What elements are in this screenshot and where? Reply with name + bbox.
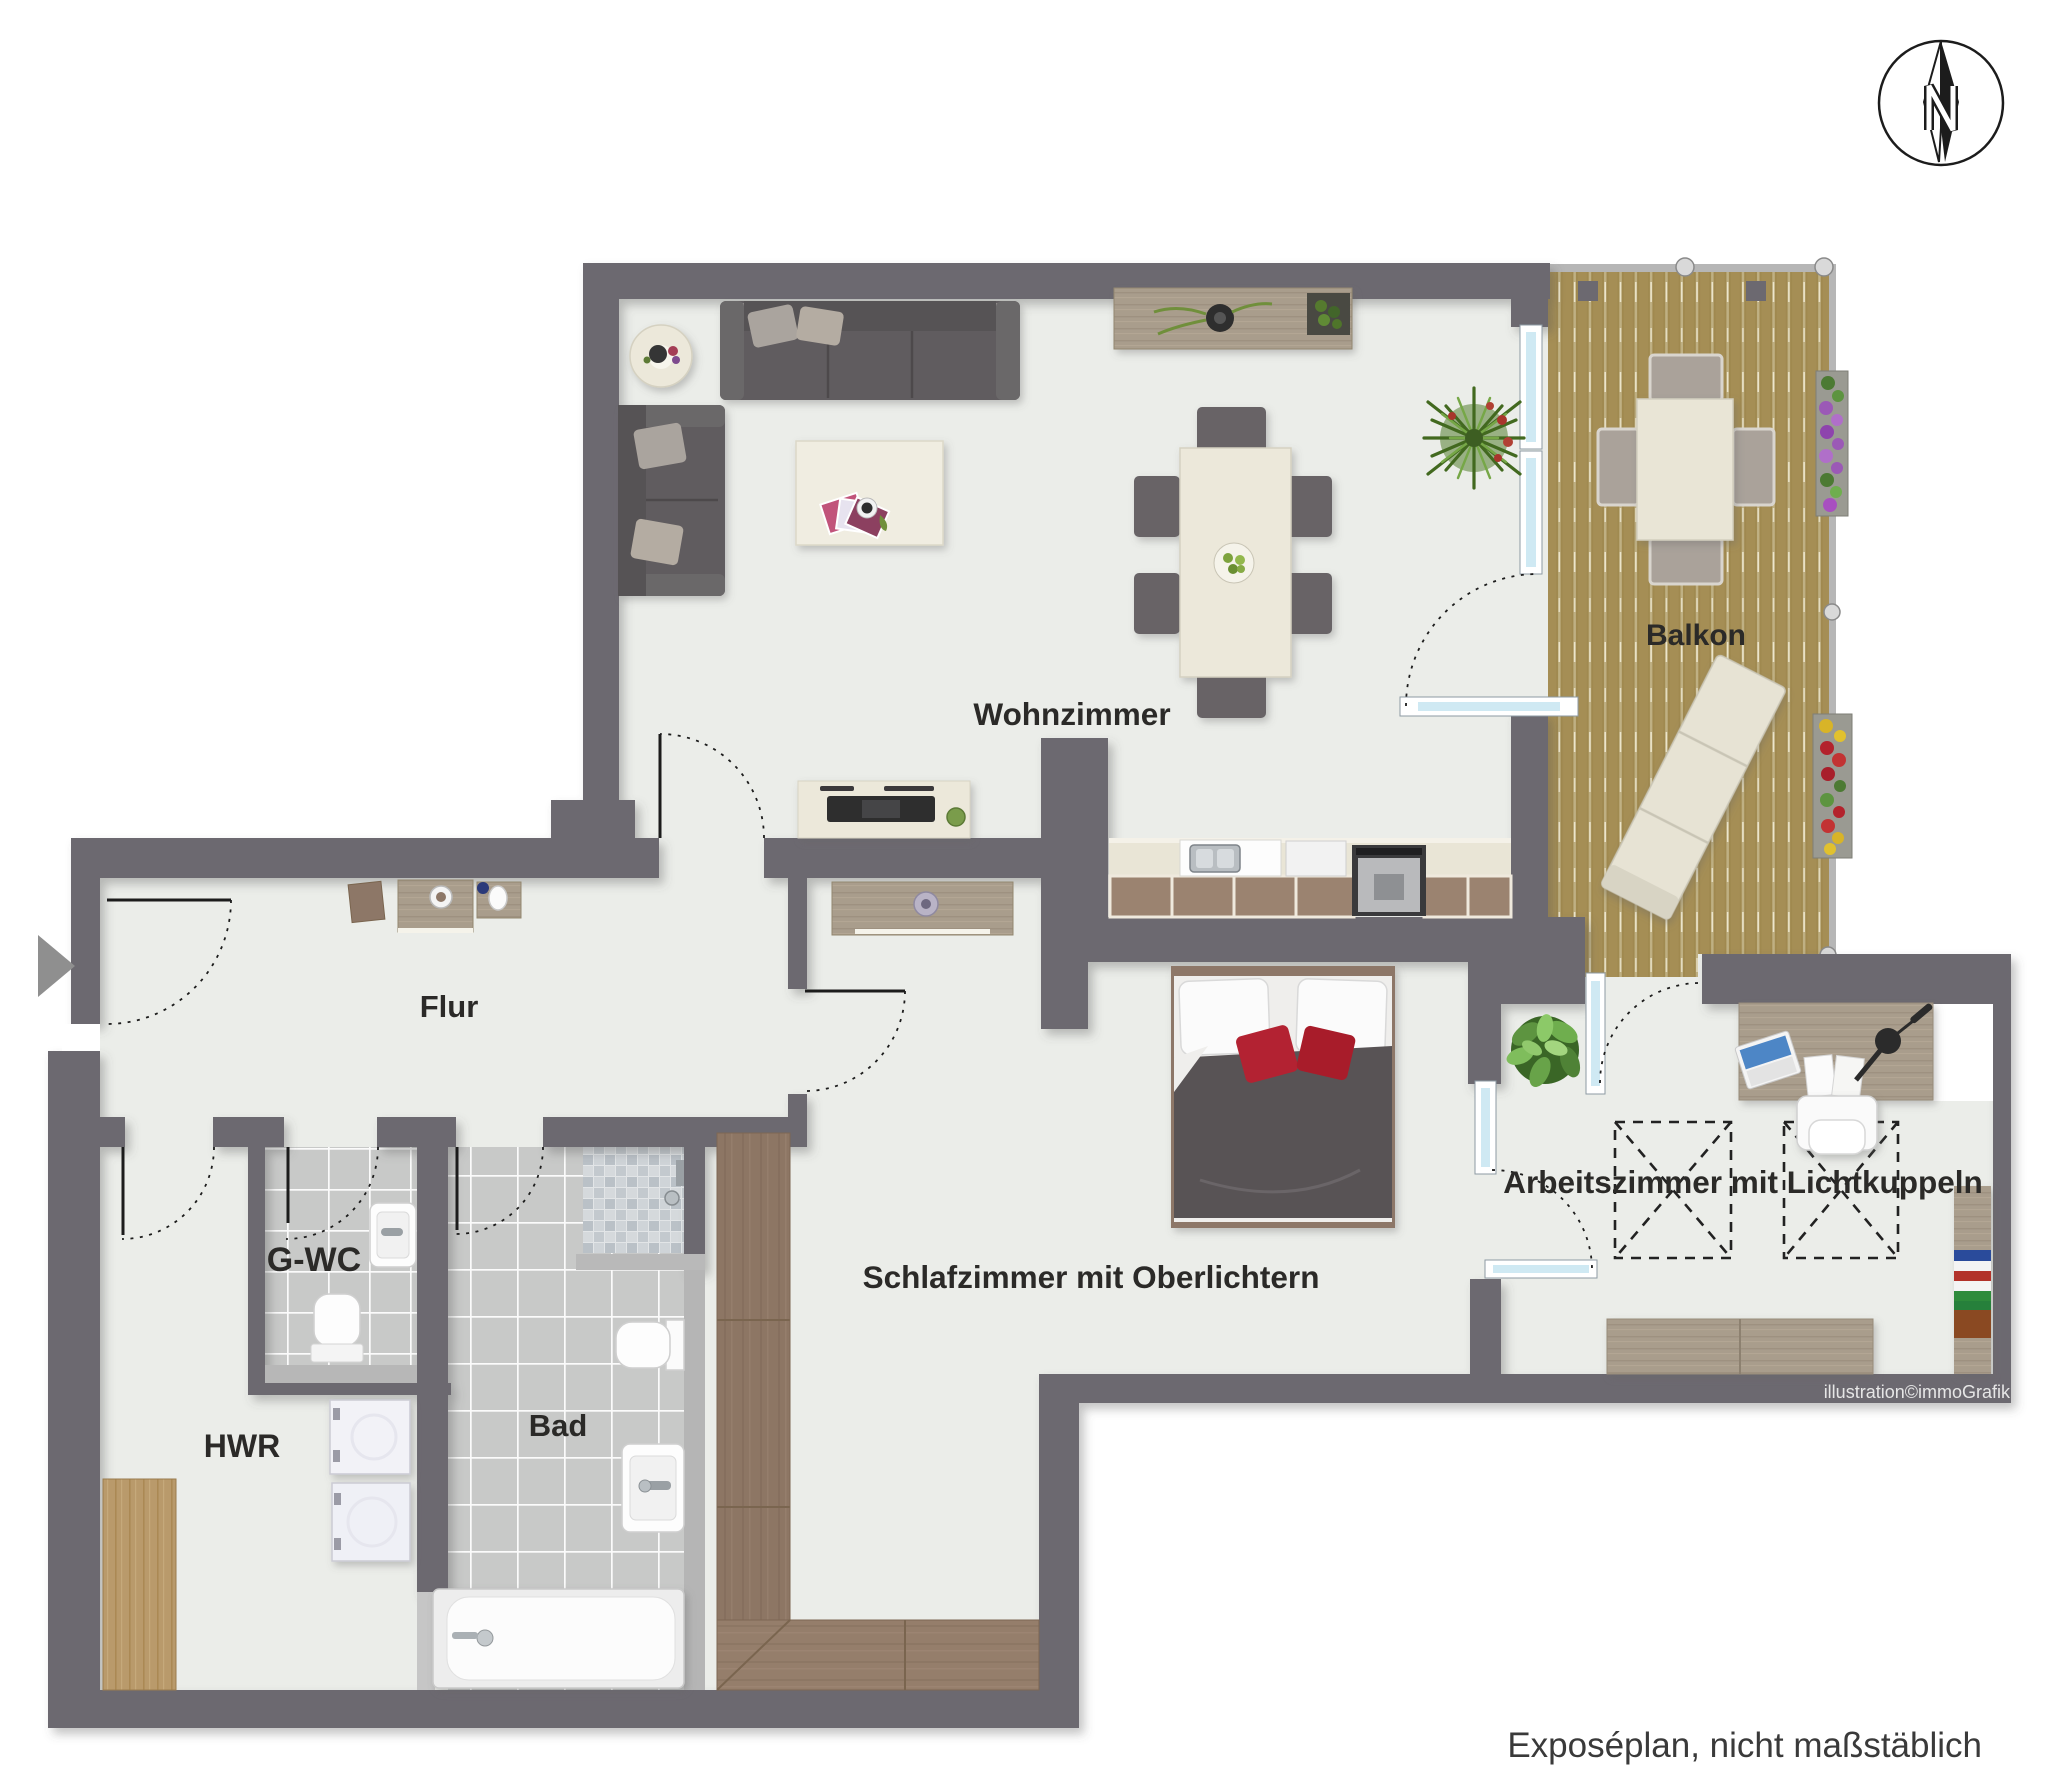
svg-text:Flur: Flur: [420, 989, 479, 1024]
svg-text:G-WC: G-WC: [267, 1241, 361, 1279]
svg-text:Balkon: Balkon: [1646, 619, 1746, 652]
svg-text:Exposéplan, nicht maßstäblich: Exposéplan, nicht maßstäblich: [1507, 1726, 1982, 1765]
svg-text:illustration©immoGrafik: illustration©immoGrafik: [1824, 1382, 2011, 1402]
svg-text:Arbeitszimmer mit Lichtkuppeln: Arbeitszimmer mit Lichtkuppeln: [1503, 1164, 1983, 1200]
svg-text:HWR: HWR: [204, 1428, 280, 1464]
svg-text:Wohnzimmer: Wohnzimmer: [973, 696, 1170, 732]
svg-text:Schlafzimmer mit Oberlichtern: Schlafzimmer mit Oberlichtern: [863, 1259, 1320, 1295]
svg-text:Bad: Bad: [529, 1408, 588, 1443]
